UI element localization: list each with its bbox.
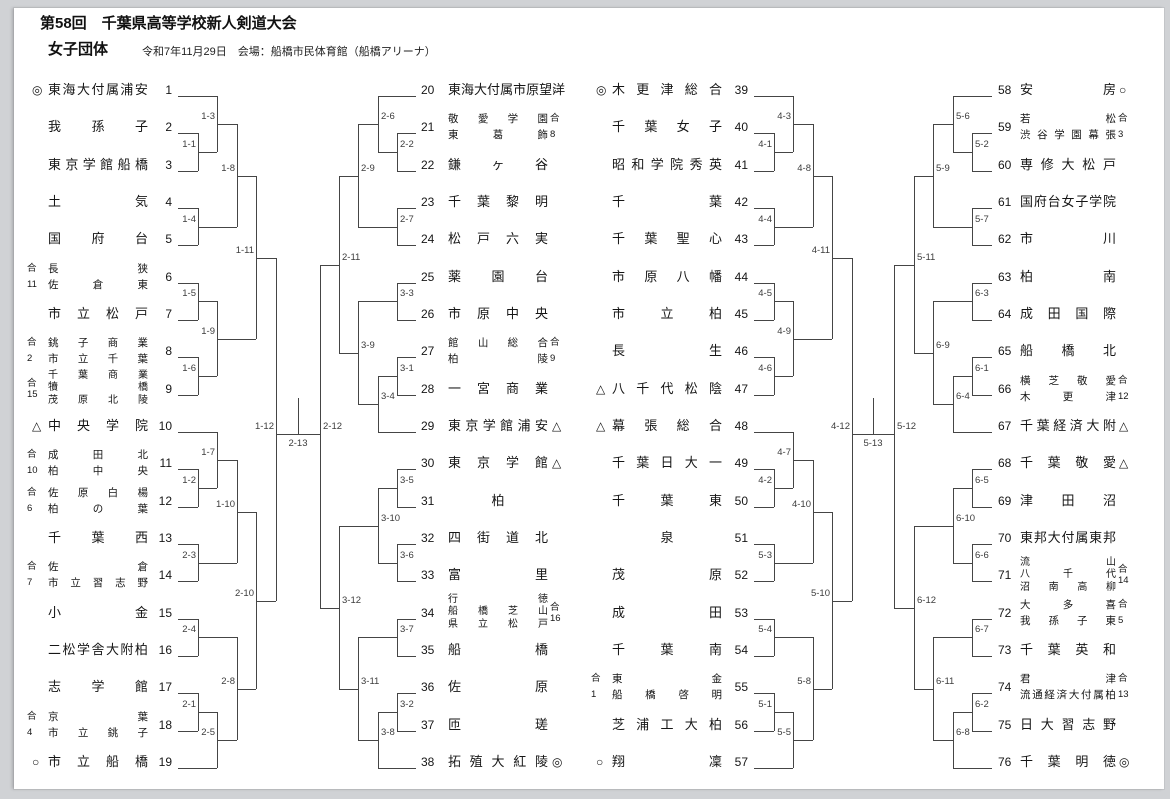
name-char: 明 [1075,753,1088,771]
match-label: 3-7 [400,624,434,636]
name-char: 付 [1081,687,1092,703]
name-char: 陵 [538,351,549,367]
bracket-line [972,133,992,134]
name-char: 田 [93,447,104,463]
joint-badge: 合5 [1118,597,1138,629]
name-char: 市 [448,305,461,323]
joint-badge: 合6 [27,485,47,517]
bracket-line [972,469,992,470]
name-char: 千 [612,193,625,211]
joint-number: 13 [1118,687,1138,703]
match-label: 5-8 [777,676,811,688]
name-char: 付 [487,81,500,99]
team-number: 45 [722,306,748,322]
team-number: 48 [722,418,748,434]
name-char: 経 [1053,417,1066,435]
bracket-line [198,712,217,713]
name-char: 更 [636,81,649,99]
joint-team-name: 成田北 [48,447,148,463]
team-number: 56 [722,717,748,733]
bracket-line [358,301,359,404]
name-char: 館 [500,417,513,435]
name-char: 学 [106,417,119,435]
name-char: 愛 [1103,454,1116,472]
team-number: 52 [722,567,748,583]
name-char: 船 [118,156,131,174]
bracket-line [320,265,339,266]
bracket-line [198,301,217,302]
match-label: 1-2 [162,475,196,487]
seed-mark: ◎ [1119,754,1129,770]
bracket-line [397,469,398,506]
name-char: 専 [1020,156,1033,174]
name-char: 園 [537,111,548,127]
team-number: 33 [421,567,443,583]
team-name: 東京学館浦安 [448,417,548,435]
name-char: 館 [448,335,459,351]
team-number: 75 [998,717,1018,733]
match-label: 4-5 [738,288,772,300]
name-char: 里 [535,566,548,584]
team-name: 翔凜 [612,753,722,771]
name-char: 松 [62,641,75,659]
bracket-line [754,208,774,209]
seed-mark: ○ [32,754,39,770]
bracket-line [320,608,339,609]
name-char: 船 [612,687,623,703]
name-char: 千 [1020,417,1033,435]
name-char: 柏 [48,463,59,479]
joint-badge: 合8 [550,111,570,143]
match-label: 5-12 [897,421,931,433]
name-char: 犢 [48,382,58,395]
name-char: 属 [106,81,119,99]
name-char: 央 [535,305,548,323]
name-char: 大 [1020,597,1031,613]
match-label: 3-2 [400,699,434,711]
bracket-line [217,339,256,340]
joint-team-name: 船橋啓明 [612,687,722,703]
bracket-line [972,283,973,320]
joint-team-name: 犢橋 [48,382,148,395]
team-number: 12 [148,493,172,509]
bracket-line [774,301,793,302]
team-number: 2 [148,119,172,135]
name-char: 国 [1075,305,1088,323]
bracket-line [397,283,398,320]
name-char: 東 [1020,529,1033,547]
name-char: 子 [78,335,89,351]
team-name: 茂原 [612,566,722,584]
seed-mark: ◎ [552,754,562,770]
name-char: 黎 [506,193,519,211]
name-char: 橋 [535,641,548,659]
name-char: 橋 [645,687,656,703]
bracket-line [972,656,992,657]
name-char: 大 [77,81,90,99]
bracket-line [237,176,256,177]
team-number: 46 [722,343,748,359]
name-char: 千 [612,492,625,510]
bracket-line [339,689,358,690]
name-char: 海 [62,81,75,99]
name-char: 殖 [470,753,483,771]
team-name: 船橋 [448,641,548,659]
name-char: 商 [506,380,519,398]
name-char: 原 [78,395,88,408]
name-char: 佐 [48,559,59,575]
name-char: 葉 [1048,641,1061,659]
name-char: 倉 [138,559,149,575]
team-number: 23 [421,194,443,210]
name-char: 千 [612,454,625,472]
team-name: 安房 [1020,81,1116,99]
match-label: 3-4 [381,391,415,403]
joint-mark: 合 [1118,671,1138,687]
team-number: 55 [722,679,748,695]
name-char: 学 [1089,193,1102,211]
name-char: 八 [1020,569,1030,582]
joint-badge: 合12 [1118,373,1138,405]
name-char: 千 [448,193,461,211]
name-char: 柏 [1105,687,1116,703]
name-char: 工 [660,716,673,734]
bracket-line [754,432,793,433]
name-char: 徳 [538,594,548,607]
name-char: 白 [108,485,119,501]
bracket-line [933,301,972,302]
bracket-line [813,176,832,177]
name-char: 館 [535,454,548,472]
joint-mark: 合 [550,111,570,127]
joint-team-name: 柏の葉 [48,501,148,517]
joint-team-name: 市立銚子 [48,725,148,741]
bracket-line [914,353,933,354]
name-char: 安 [1020,81,1033,99]
name-char: 柏 [448,351,459,367]
team-name: 市川 [1020,230,1116,248]
team-name: 一宮商業 [448,380,548,398]
name-char: 幕 [612,417,625,435]
name-char: 芝 [508,606,518,619]
name-char: 千 [48,529,61,547]
name-char: 二 [48,641,61,659]
bracket-line [953,96,954,152]
bracket-line [378,376,397,377]
match-label: 4-7 [757,447,791,459]
team-number: 47 [722,381,748,397]
team-number: 40 [722,119,748,135]
name-char: 習 [1061,716,1074,734]
bracket-line [397,693,398,730]
joint-number: 12 [1118,389,1138,405]
match-label: 1-11 [220,245,254,257]
name-char: 東 [138,277,149,293]
name-char: 生 [709,342,722,360]
name-char: 山 [1106,557,1116,570]
name-char: 英 [1075,641,1088,659]
name-char: 葉 [660,641,673,659]
match-label: 5-7 [975,214,1009,226]
name-char: 道 [506,529,519,547]
bracket-line [914,526,915,689]
name-char: 金 [712,671,723,687]
name-char: 敬 [1075,454,1088,472]
name-char: 柏 [491,492,504,510]
final-match-label: 2-13 [281,438,315,450]
team-number: 74 [998,679,1018,695]
team-name: 市立柏 [612,305,722,323]
name-char: 更 [1063,389,1074,405]
name-char: 戸 [477,230,490,248]
name-char: 山 [478,335,489,351]
name-char: 商 [108,335,119,351]
team-name: 東海大付属浦安 [48,81,148,99]
team-name: 鎌ヶ谷 [448,156,548,174]
bracket-line [933,301,934,404]
team-number: 11 [148,455,172,471]
team-number: 25 [421,269,443,285]
match-label: 2-4 [162,624,196,636]
match-label: 3-10 [381,513,415,525]
name-char: 長 [612,342,625,360]
name-char: 中 [93,463,104,479]
bracket-line [793,124,813,125]
bracket-line [972,619,973,656]
joint-team-name: 東葛飾 [448,127,548,143]
name-char: 女 [677,118,690,136]
bracket-line [754,133,774,134]
name-char: 原 [644,268,657,286]
name-char: 代 [1106,569,1116,582]
name-char: 田 [1061,492,1074,510]
bracket-line [754,768,793,769]
bracket-line [378,712,379,768]
bracket-line [972,544,973,581]
match-label: 3-11 [361,676,395,688]
name-char: 市 [48,351,59,367]
joint-badge: 合11 [27,261,47,293]
name-char: 立 [78,351,89,367]
bracket-line [754,619,774,620]
team-number: 24 [421,231,443,247]
name-char: 実 [535,230,548,248]
match-label: 3-1 [400,363,434,375]
team-number: 42 [722,194,748,210]
name-char: 北 [138,447,149,463]
name-char: 津 [660,81,673,99]
name-char: 柏 [135,641,148,659]
name-char: 東 [448,454,461,472]
bracket-line [358,404,378,405]
bracket-line [774,637,813,638]
joint-team-name: 木更津 [1020,389,1116,405]
name-char: 谷 [1037,127,1048,143]
bracket-line [397,245,416,246]
match-label: 4-1 [738,139,772,151]
name-char: 山 [538,606,548,619]
team-name: 市立松戸 [48,305,148,323]
name-char: 千 [108,351,119,367]
joint-team-name: 市立千葉 [48,351,148,367]
name-char: 小 [48,604,61,622]
team-name: 芝浦工大柏 [612,716,722,734]
match-label: 6-3 [975,288,1009,300]
bracket-line [358,740,378,741]
team-name: 拓殖大紅陵 [448,753,548,771]
name-char: 富 [448,566,461,584]
joint-mark: 合 [27,447,47,463]
bracket-line [397,619,398,656]
bracket-line [953,488,954,563]
name-char: 葉 [138,709,149,725]
match-label: 6-12 [917,595,951,607]
name-char: 院 [1103,193,1116,211]
bracket-line [754,469,774,470]
name-char: 愛 [478,111,489,127]
name-char: 瑳 [535,716,548,734]
name-char: 大 [685,716,698,734]
bracket-line [178,656,198,657]
name-char: 芝 [612,716,625,734]
name-char: 大 [1061,156,1074,174]
name-char: 聖 [677,230,690,248]
bracket-line [972,619,992,620]
name-char: 陵 [535,753,548,771]
joint-team-name: 若松 [1020,111,1116,127]
name-char: 葉 [644,118,657,136]
name-char: 鎌 [448,156,461,174]
name-char: 徳 [1103,753,1116,771]
joint-team-name: 沼南高柳 [1020,582,1116,595]
team-number: 28 [421,381,443,397]
match-label: 6-10 [956,513,990,525]
bracket-line [358,227,397,228]
seed-mark: △ [32,418,41,434]
match-label: 6-11 [936,676,970,688]
name-char: 望 [539,81,552,99]
name-char: 国 [1020,193,1033,211]
name-char: 柏 [1020,268,1033,286]
bracket-line [793,339,832,340]
team-name: 幕張総合 [612,417,722,435]
name-char: 学 [506,454,519,472]
joint-number: 15 [27,389,47,400]
joint-mark: 合 [27,709,47,725]
name-char: 六 [506,230,519,248]
match-label: 2-5 [181,727,215,739]
team-number: 69 [998,493,1018,509]
name-char: 船 [448,606,458,619]
team-name: 長生 [612,342,722,360]
name-char: 通 [1032,687,1043,703]
bracket-line [754,507,774,508]
name-char: 原 [709,566,722,584]
bracket-line [198,637,237,638]
name-char: 府 [1034,193,1047,211]
name-char: 千 [612,641,625,659]
joint-badge: 合7 [27,559,47,591]
team-name: 東京学館船橋 [48,156,148,174]
bracket-line [972,208,973,245]
name-char: 市 [48,725,59,741]
bracket-line [178,581,198,582]
name-char: 属 [1075,529,1088,547]
match-label: 6-4 [956,391,990,403]
team-name: 千葉経済大附 [1020,417,1116,435]
name-char: 佐 [48,277,59,293]
joint-number: 10 [27,463,47,479]
bracket-line [754,693,774,694]
name-char: 付 [91,81,104,99]
name-char: 橋 [1061,342,1074,360]
bracket-line [178,171,198,172]
team-number: 17 [148,679,172,695]
name-char: 大 [106,641,119,659]
match-label: 2-12 [323,421,357,433]
name-char: 孫 [1049,613,1060,629]
name-char: 東 [48,81,61,99]
match-label: 3-3 [400,288,434,300]
name-char: 市 [513,81,526,99]
bracket-line [774,563,813,564]
bracket-line [339,353,358,354]
bracket-line [832,258,852,259]
name-char: 業 [535,380,548,398]
team-number: 67 [998,418,1018,434]
team-name: 我孫子 [48,118,148,136]
name-char: 館 [100,156,113,174]
match-label: 1-4 [162,214,196,226]
name-char: 葉 [1037,417,1050,435]
name-char: 明 [711,687,722,703]
name-char: 市 [48,305,61,323]
team-number: 41 [722,157,748,173]
team-name: 昭和学院秀英 [612,156,722,174]
match-label: 1-12 [240,421,274,433]
name-char: 合 [709,81,722,99]
name-char: 街 [477,529,490,547]
team-number: 15 [148,605,172,621]
name-char: 原 [78,485,89,501]
team-name: 船橋北 [1020,342,1116,360]
bracket-line [754,96,793,97]
team-number: 44 [722,269,748,285]
joint-mark: 合 [27,261,47,277]
bracket-line [339,176,358,177]
team-number: 72 [998,605,1018,621]
name-char: 若 [1020,111,1031,127]
match-label: 4-10 [777,499,811,511]
name-char: 大 [1069,687,1080,703]
joint-number: 7 [27,575,47,591]
bracket-line [953,488,972,489]
name-char: 野 [138,575,149,591]
team-number: 39 [722,82,748,98]
bracket-line [754,283,774,284]
name-char: 葉 [660,492,673,510]
name-char: 八 [612,380,625,398]
name-char: 西 [135,529,148,547]
bracket-line [178,357,198,358]
name-char: 張 [1105,127,1116,143]
joint-badge: 合1 [591,671,611,703]
match-label: 3-12 [342,595,376,607]
joint-team-name: 茂原北陵 [48,395,148,408]
bracket-line [754,357,774,358]
name-char: 四 [448,529,461,547]
joint-team-name: 柏陵 [448,351,548,367]
